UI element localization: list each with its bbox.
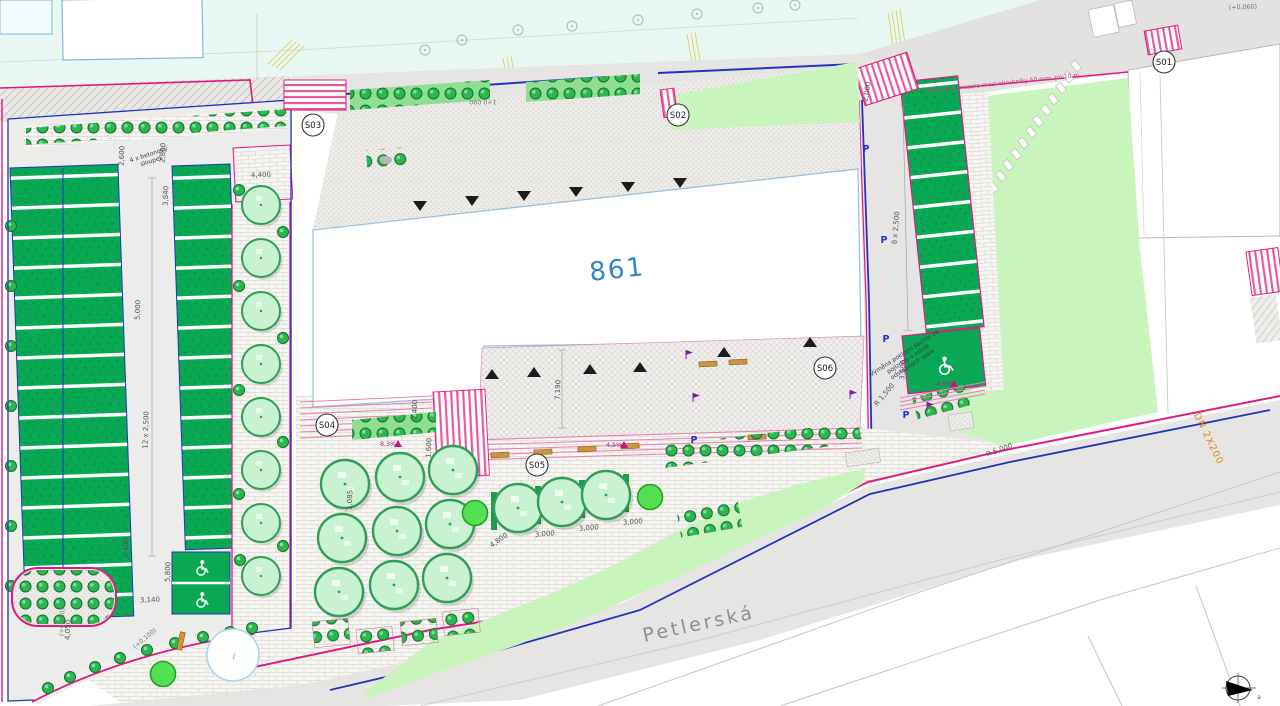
dim-5000: 5,000 (134, 300, 143, 320)
chainage-label: 1+0 090 (469, 98, 496, 105)
parking-sign: P (691, 435, 698, 446)
dim-5800: 5,800 (164, 562, 173, 582)
dim-2400-a: 2,400 (122, 538, 131, 558)
stairs-nw (284, 80, 346, 110)
dim-3000-b: 3,000 (579, 523, 600, 532)
young-tree (463, 501, 488, 526)
dim-2600: 2,600 (118, 146, 127, 166)
north-arrow-icon: a (1222, 673, 1261, 703)
bench (699, 361, 717, 367)
parcel-number: 861 (588, 252, 646, 288)
slope-45-a: 4,5% (606, 442, 622, 449)
dim-3140: 3,140 (140, 596, 160, 605)
marker-s02: S02 (670, 111, 686, 121)
dim-stalls-left: 12 x 2,500 (141, 411, 150, 449)
marker-s01: S01 (1156, 58, 1172, 68)
bench (578, 446, 596, 452)
parking-sign: P (863, 144, 870, 155)
dim-7190: 7,190 (554, 380, 563, 400)
dim-3000-a: 3,000 (535, 529, 556, 538)
slope-83: 8,3% (380, 441, 396, 448)
parking-sign: P (903, 410, 910, 421)
level-plus60: (+0,060) (1229, 4, 1257, 12)
young-tree (151, 662, 176, 687)
parking-west (2, 99, 293, 702)
dim-3840: 3,840 (162, 186, 171, 206)
bench (491, 452, 509, 458)
site-plan-page: 861 S01 S02 S03 S04 S05 S06 (0, 0, 1280, 706)
slope-45-b: 4,5% (936, 381, 952, 388)
north-arrow-label: a (1257, 694, 1261, 701)
level-plus100-a: (+0,100) (59, 608, 67, 636)
bench (729, 359, 747, 365)
marker-s06: S06 (817, 364, 833, 374)
dim-2400-b: 2,400 (411, 400, 420, 420)
dim-1600: 1,600 (425, 438, 434, 458)
parking-sign: P (881, 235, 888, 246)
existing-building-nw (62, 0, 203, 60)
dim-1085: 1,085 (346, 490, 355, 510)
site-plan-drawing: 861 S01 S02 S03 S04 S05 S06 (0, 0, 1280, 706)
stalls-double-row (10, 164, 134, 619)
marker-s05: S05 (529, 461, 545, 471)
parking-sign: P (883, 334, 890, 345)
boundary-hatch-right (1250, 294, 1280, 343)
marker-s04: S04 (319, 421, 335, 431)
dim-3000-c: 3,000 (623, 517, 644, 526)
young-tree (638, 485, 663, 510)
marker-s03: S03 (305, 121, 321, 131)
existing-pool-nw (0, 0, 52, 34)
crosswalk-right-edge (1246, 248, 1280, 296)
dim-4400: 4,400 (251, 170, 271, 179)
crosswalk-east (1144, 25, 1182, 55)
